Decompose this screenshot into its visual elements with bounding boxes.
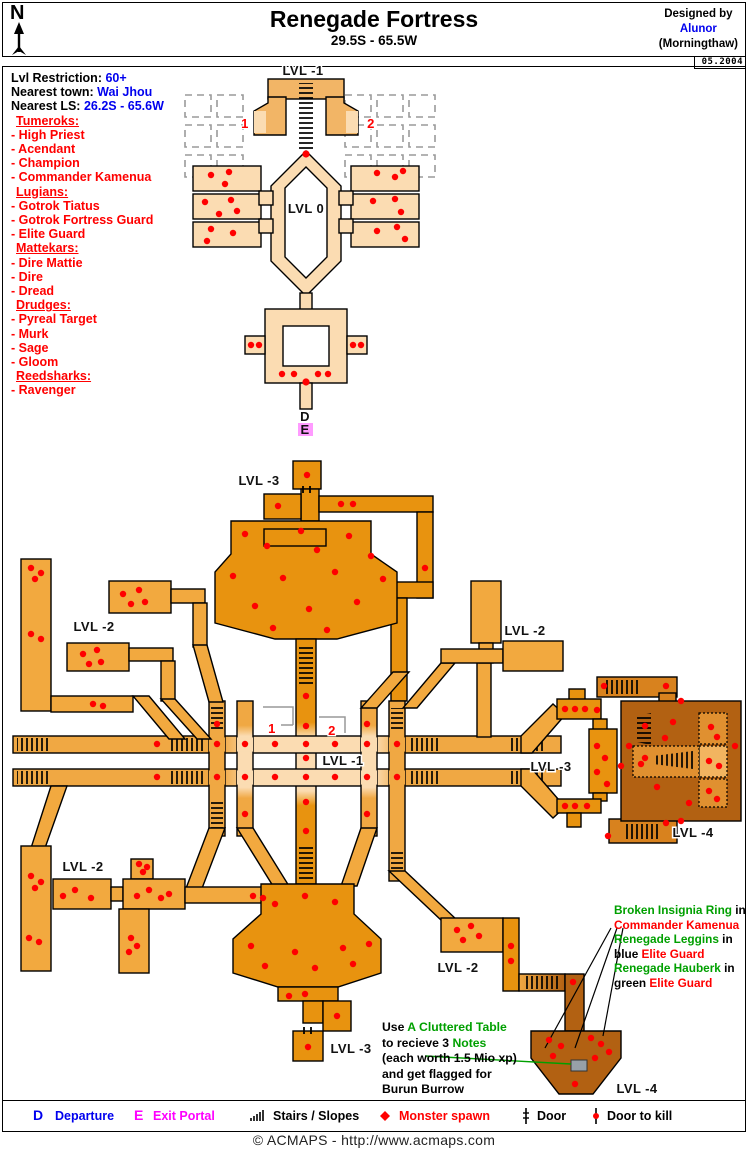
creature-group-title: Drudges:	[11, 298, 164, 312]
creature: - Pyreal Target	[11, 312, 164, 326]
designer-credit: Designed by Alunor (Morningthaw)	[659, 7, 738, 52]
creature: - Dread	[11, 284, 164, 298]
page-coordinates: 29.5S - 65.5W	[0, 33, 748, 48]
square-room-court	[283, 326, 329, 366]
loot-note-line: blue Elite Guard	[614, 947, 746, 962]
info-row: Nearest LS: 26.2S - 65.6W	[11, 99, 164, 113]
table-note-line: and get flagged for	[382, 1067, 517, 1083]
creature: - Elite Guard	[11, 227, 164, 241]
label-lvl-minus1-upper: LVL -1	[283, 63, 324, 78]
loot-note: Broken Insignia Ring in Commander Kamenu…	[614, 903, 746, 990]
creature: - Commander Kamenua	[11, 170, 164, 184]
table-note: Use A Cluttered Table to recieve 3 Notes…	[382, 1020, 517, 1098]
legend-bar: D Departure E Exit Portal Stairs / Slope…	[2, 1100, 746, 1132]
creature: - Gloom	[11, 355, 164, 369]
creature-group-title: Tumeroks:	[11, 114, 164, 128]
lvl3-bottom-funnel	[233, 884, 381, 1061]
label-lvl2-bottom-left: LVL -2	[63, 859, 104, 874]
map-area: Lvl Restriction: 60+ Nearest town: Wai J…	[2, 66, 746, 1101]
label-lvl3-right: LVL -3	[531, 759, 572, 774]
creature: - Gotrok Tiatus	[11, 199, 164, 213]
portal-marker-1: 1	[268, 721, 276, 736]
exit-portal-marker: E	[300, 422, 309, 437]
stairs	[605, 680, 641, 694]
designer-name: Alunor	[659, 22, 738, 37]
copyright-footer: © ACMAPS - http://www.acmaps.com	[0, 1132, 748, 1148]
portal-pad-2	[346, 111, 358, 133]
label-lvl-0: LVL 0	[288, 201, 324, 216]
creature: - Dire	[11, 270, 164, 284]
loot-note-line: Broken Insignia Ring in	[614, 903, 746, 918]
legend-spawn-label: Monster spawn	[399, 1109, 490, 1123]
stairs	[623, 824, 659, 839]
label-lvl1-center: LVL -1	[323, 753, 364, 768]
designed-by-label: Designed by	[659, 7, 738, 22]
label-lvl4-right: LVL -4	[673, 825, 714, 840]
loot-note-line: Commander Kamenua	[614, 918, 746, 933]
info-row: Lvl Restriction: 60+	[11, 71, 164, 85]
info-panel: Lvl Restriction: 60+ Nearest town: Wai J…	[11, 71, 164, 398]
stairs-hatches	[17, 706, 544, 874]
monster-spawn-icon	[380, 1111, 390, 1121]
designer-server: (Morningthaw)	[659, 37, 738, 52]
creature: - Acendant	[11, 142, 164, 156]
stairs-icon	[249, 1109, 267, 1124]
creature-group-title: Reedsharks:	[11, 369, 164, 383]
table-note-line: Burun Burrow	[382, 1082, 517, 1098]
stairs	[299, 844, 313, 882]
page-title: Renegade Fortress	[0, 6, 748, 33]
legend-door-kill-label: Door to kill	[607, 1109, 672, 1123]
label-lvl3-bottom: LVL -3	[331, 1041, 372, 1056]
creature: - Gotrok Fortress Guard	[11, 213, 164, 227]
info-row: Nearest town: Wai Jhou	[11, 85, 164, 99]
legend-door-label: Door	[537, 1109, 566, 1123]
lvl2-left-cluster	[21, 559, 223, 848]
portal-marker-2: 2	[328, 723, 336, 738]
creature: - Murk	[11, 327, 164, 341]
legend-departure-symbol: D	[33, 1107, 43, 1123]
table-note-line: (each worth 1.5 Mio xp)	[382, 1051, 517, 1067]
creature: - Ravenger	[11, 383, 164, 397]
portal-marker-2: 2	[367, 116, 375, 131]
acmap-page: N Renegade Fortress 29.5S - 65.5W Design…	[0, 0, 748, 1149]
creature: - Champion	[11, 156, 164, 170]
label-lvl2-bottom-right: LVL -2	[438, 960, 479, 975]
table-note-line: Use A Cluttered Table	[382, 1020, 517, 1036]
lower-dungeon-map: LVL -3 LVL -2 LVL -2 LVL -1 1 2 LVL -3 L…	[5, 446, 745, 1100]
portal-pad-1	[254, 111, 266, 133]
upper-dungeon-map: LVL -1 1 2	[181, 61, 441, 439]
loot-note-line: Renegade Hauberk in	[614, 961, 746, 976]
legend-stairs-label: Stairs / Slopes	[273, 1109, 359, 1123]
lvl-0-courtyard	[285, 167, 327, 278]
door-to-kill-icon	[592, 1108, 600, 1124]
stairs	[299, 83, 313, 151]
creature-group-title: Mattekars:	[11, 241, 164, 255]
label-lvl3-top: LVL -3	[239, 473, 280, 488]
legend-departure-label: Departure	[55, 1109, 114, 1123]
loot-note-line: Renegade Leggins in	[614, 932, 746, 947]
creature: - Dire Mattie	[11, 256, 164, 270]
loot-note-line: green Elite Guard	[614, 976, 746, 991]
door-icon	[522, 1108, 530, 1124]
portal-marker-1: 1	[241, 116, 249, 131]
cluttered-table-icon	[571, 1060, 587, 1071]
legend-exit-label: Exit Portal	[153, 1109, 215, 1123]
lvl3-top-complex	[215, 461, 433, 701]
creature-group-title: Lugians:	[11, 185, 164, 199]
table-note-line: to recieve 3 Notes	[382, 1036, 517, 1052]
label-lvl2-right: LVL -2	[505, 623, 546, 638]
stairs	[525, 976, 561, 989]
stairs	[299, 644, 313, 684]
label-lvl2-left: LVL -2	[74, 619, 115, 634]
legend-exit-symbol: E	[134, 1107, 143, 1123]
creature: - Sage	[11, 341, 164, 355]
label-lvl4-bottom: LVL -4	[617, 1081, 658, 1096]
creature: - High Priest	[11, 128, 164, 142]
